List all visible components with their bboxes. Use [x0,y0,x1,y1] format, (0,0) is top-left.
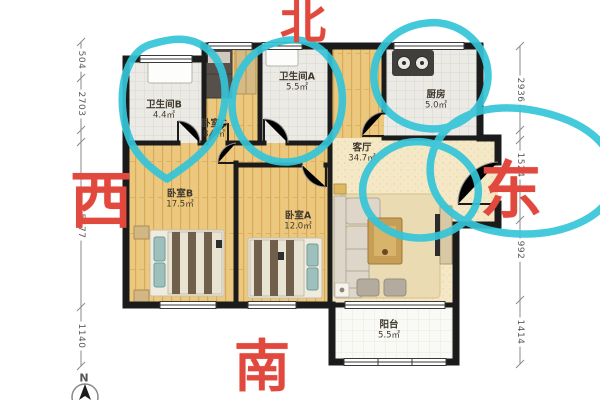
directions-layer: 北 西 东 南 [0,0,600,400]
direction-north: 北 [280,0,326,45]
direction-south: 南 [234,340,290,396]
direction-west: 西 [70,170,132,232]
floor-plan-screenshot: 卫生间B 4.4㎡ 卧室C 8.3㎡ 卫生间A 5.5㎡ 厨房 5.0㎡ 客厅 … [0,0,600,400]
direction-east: 东 [480,160,542,222]
